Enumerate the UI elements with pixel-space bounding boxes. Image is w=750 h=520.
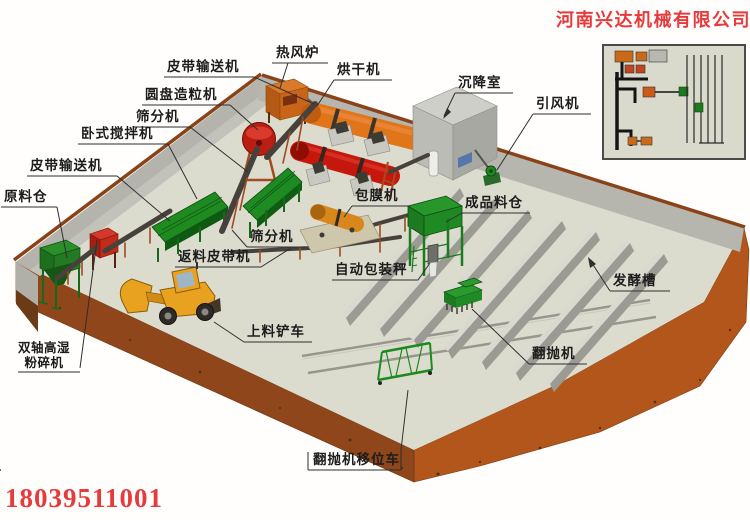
- label-induced-draft-fan: 引风机: [536, 97, 580, 111]
- label-belt-conveyor-top: 皮带输送机: [167, 60, 240, 74]
- label-loader: 上料铲车: [247, 325, 305, 339]
- production-line-illustration: [0, 0, 750, 520]
- label-hot-air-furnace: 热风炉: [276, 46, 320, 60]
- label-belt-conveyor-left: 皮带输送机: [30, 159, 103, 173]
- auto-packing-scale-machine: [428, 244, 438, 277]
- label-crusher-line1: 双轴高湿: [18, 341, 70, 355]
- label-raw-material-bin: 原料仓: [4, 190, 48, 204]
- label-crusher: 双轴高湿粉碎机: [8, 341, 80, 371]
- label-turner-shifting-cart: 翻抛机移位车: [313, 453, 400, 467]
- label-auto-packing-scale: 自动包装秤: [335, 263, 408, 277]
- label-crusher-line2: 粉碎机: [24, 356, 63, 370]
- label-finished-product-bin: 成品料仓: [465, 196, 523, 210]
- label-dryer: 烘干机: [337, 63, 381, 77]
- company-name: 河南兴达机械有限公司: [556, 6, 750, 32]
- label-coating-machine: 包膜机: [355, 189, 399, 203]
- label-screen-lower: 筛分机: [250, 230, 294, 244]
- label-settling-chamber: 沉降室: [458, 76, 502, 90]
- phone-number: 18039511001: [5, 483, 163, 514]
- product-illustration-page: 河南兴达机械有限公司 18039511001 皮带输送机 圆盘造粒机 筛分机 卧…: [0, 0, 750, 520]
- label-horizontal-mixer: 卧式搅拌机: [81, 127, 154, 141]
- label-screen-upper: 筛分机: [136, 110, 180, 124]
- label-disc-granulator: 圆盘造粒机: [145, 88, 218, 102]
- label-return-belt: 返料皮带机: [178, 250, 251, 264]
- label-compost-turner: 翻抛机: [532, 347, 576, 361]
- label-fermentation-trough: 发酵槽: [613, 274, 657, 288]
- plan-view-inset: [603, 45, 745, 159]
